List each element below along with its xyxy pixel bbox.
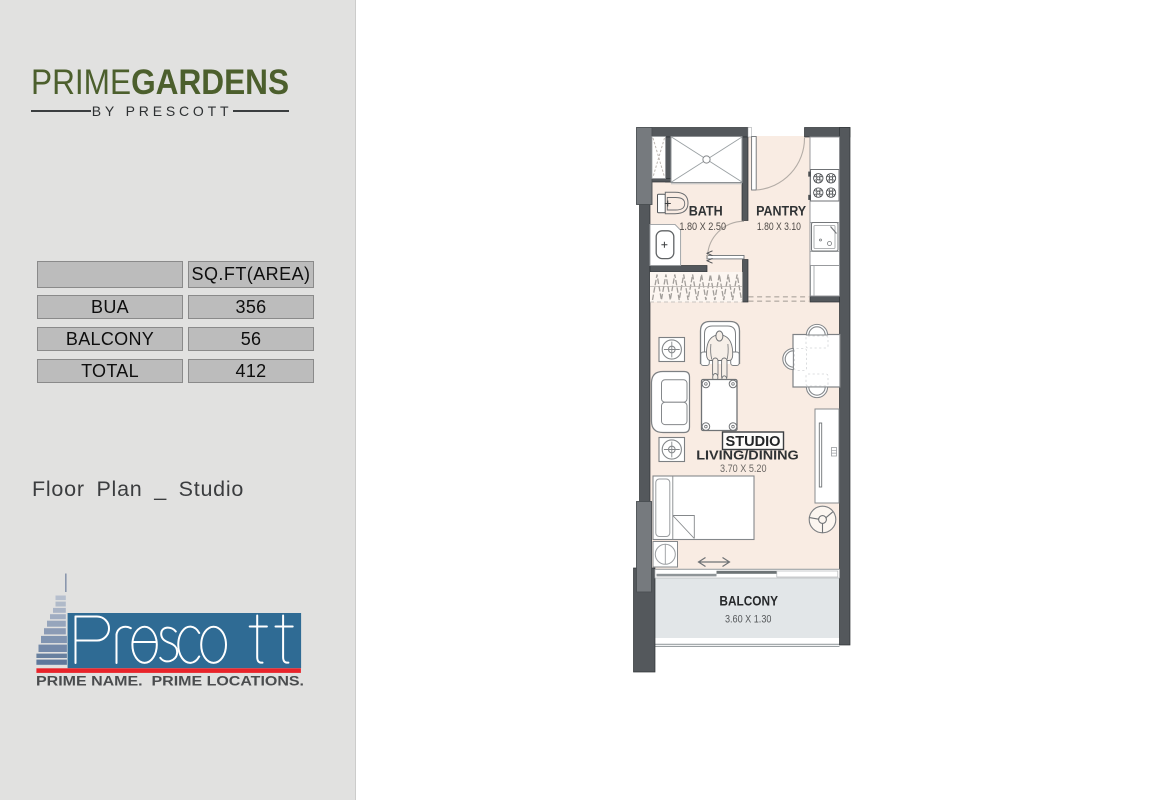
svg-text:PANTRY: PANTRY <box>756 204 806 219</box>
svg-text:1.80 X 3.10: 1.80 X 3.10 <box>757 221 801 233</box>
svg-text:3.60 X 1.30: 3.60 X 1.30 <box>725 614 772 626</box>
svg-text:1.80 X 2.50: 1.80 X 2.50 <box>679 221 726 233</box>
svg-text:BATH: BATH <box>689 204 723 219</box>
svg-text:LIVING/DINING: LIVING/DINING <box>696 448 799 463</box>
svg-text:PRIME NAME. PRIME LOCATIONS.: PRIME NAME. PRIME LOCATIONS. <box>36 673 304 688</box>
svg-text:3.70 X 5.20: 3.70 X 5.20 <box>720 463 767 475</box>
svg-text:BALCONY: BALCONY <box>719 594 778 609</box>
